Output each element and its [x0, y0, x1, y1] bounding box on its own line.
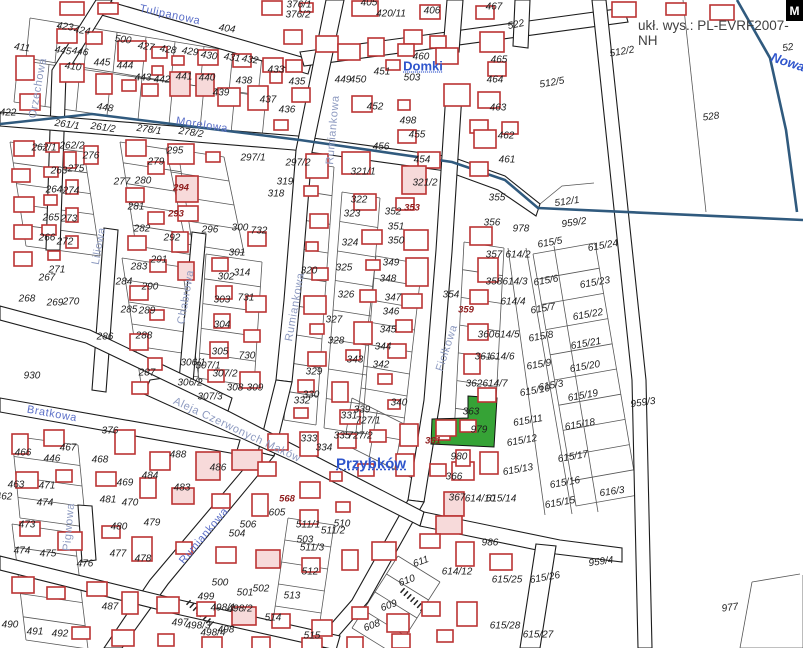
- parcel-label: 614/6: [489, 352, 514, 363]
- parcel-label: 466: [15, 448, 32, 459]
- building: [404, 230, 428, 250]
- building: [304, 296, 326, 314]
- building: [122, 592, 138, 614]
- building: [352, 607, 368, 619]
- parcel-label: 614/12: [442, 567, 473, 578]
- parcel-label: 363: [463, 407, 480, 418]
- parcel-label: 732: [251, 226, 268, 237]
- parcel-label: 452: [367, 102, 384, 113]
- parcel-label: 321/2: [412, 178, 437, 189]
- parcel-label: 451: [374, 67, 391, 78]
- parcel-label: 503: [404, 73, 421, 84]
- parcel-label: 347: [385, 293, 402, 304]
- parcel-label: 266: [39, 233, 56, 244]
- building: [336, 502, 350, 512]
- parcel-label: 435: [289, 77, 306, 88]
- building: [406, 258, 428, 286]
- building: [158, 634, 174, 646]
- parcel-label: 488: [170, 450, 187, 461]
- parcel-label: 346: [383, 307, 400, 318]
- building: [304, 186, 318, 196]
- parcel-label: 340: [391, 398, 408, 409]
- building: [372, 542, 396, 560]
- parcel-label: 481: [100, 495, 117, 506]
- building: [112, 630, 134, 646]
- parcel-label: 327: [326, 315, 343, 326]
- parcel-label: 614/3: [502, 277, 527, 288]
- parcel-label: 511/1: [296, 520, 320, 531]
- map-mode-button[interactable]: M: [786, 0, 803, 21]
- building: [366, 260, 380, 270]
- parcel-label: 288: [136, 331, 153, 342]
- building: [212, 258, 228, 271]
- parcel-label: 308: [227, 383, 244, 394]
- parcel-label: 510: [334, 519, 351, 530]
- parcel-label: 285: [121, 305, 138, 316]
- parcel-label: 272: [57, 237, 74, 248]
- parcel-label: 528: [702, 110, 720, 123]
- parcel-label: 273: [61, 214, 78, 225]
- building: [284, 30, 302, 44]
- parcel-label: 323: [344, 209, 361, 220]
- building: [457, 602, 477, 626]
- parcel-label: 334: [316, 443, 333, 454]
- parcel-label: 271: [49, 265, 66, 276]
- building: [362, 230, 382, 244]
- building: [300, 482, 320, 498]
- parcel-label: 986: [482, 538, 499, 549]
- building: [404, 30, 422, 44]
- building: [14, 252, 32, 266]
- building: [150, 452, 170, 470]
- parcel-label: 281: [128, 202, 145, 213]
- building: [12, 169, 30, 182]
- building: [480, 32, 504, 52]
- parcel-label: 487: [102, 602, 119, 613]
- parcel-label: 486: [210, 463, 227, 474]
- building: [436, 420, 456, 436]
- parcel-label: 262/2: [59, 141, 84, 152]
- parcel-label: 295: [167, 146, 184, 157]
- parcel-label: 309: [247, 383, 264, 394]
- parcel-label: 614/7: [482, 379, 507, 390]
- parcel-label: 484: [142, 471, 159, 482]
- parcel-label: 344: [375, 342, 392, 353]
- parcel-label: 292: [164, 233, 181, 244]
- building: [332, 382, 348, 402]
- building: [330, 472, 342, 481]
- parcel-label: 514: [265, 613, 282, 624]
- parcel-label: 283: [131, 262, 148, 273]
- parcel-label: 731: [238, 293, 255, 304]
- parcel-label: 325: [336, 263, 353, 274]
- parcel-label: 322: [351, 195, 368, 206]
- building: [72, 627, 90, 639]
- parcel-label: 405: [361, 0, 378, 9]
- building: [47, 587, 65, 599]
- building: [126, 140, 146, 156]
- building: [286, 60, 302, 72]
- building: [308, 352, 326, 366]
- parcel-label: 498/4: [200, 628, 225, 639]
- parcel-label: 406: [424, 6, 441, 17]
- parcel-label: 454: [414, 155, 431, 166]
- parcel-label: 297/1: [240, 153, 265, 164]
- parcel-label: 492: [52, 629, 69, 640]
- building: [216, 547, 236, 563]
- parcel-label: 332: [294, 396, 311, 407]
- building: [98, 3, 118, 14]
- building: [342, 550, 358, 570]
- building: [60, 2, 84, 15]
- building: [87, 582, 107, 596]
- building: [262, 1, 282, 15]
- building: [132, 382, 148, 394]
- parcel-label: 443: [135, 73, 152, 84]
- parcel-label: 270: [63, 297, 80, 308]
- parcel-label: 979: [471, 425, 488, 436]
- parcel-label: 470: [122, 498, 139, 509]
- building: [310, 324, 324, 334]
- parcel-label: 463: [490, 103, 507, 114]
- building: [392, 634, 410, 648]
- parcel-label: 441: [176, 72, 193, 83]
- building: [387, 614, 409, 632]
- parcel-label: 431: [223, 51, 241, 64]
- parcel-label: 279: [148, 157, 165, 168]
- parcel-label: 475: [40, 549, 57, 560]
- building: [172, 56, 184, 65]
- building: [292, 88, 310, 102]
- parcel-label: 730: [239, 351, 256, 362]
- parcel-label: 324: [342, 238, 359, 249]
- parcel-label: 265: [43, 213, 60, 224]
- parcel-label: 427: [137, 40, 155, 53]
- building: [398, 100, 410, 110]
- height-system-note: ukł. wys.: PL-EVRF2007-NH: [638, 18, 803, 48]
- parcel-label: 307/3: [197, 392, 222, 403]
- parcel-label: 318: [268, 189, 285, 200]
- parcel-label: 362: [466, 379, 483, 390]
- building: [378, 374, 392, 384]
- parcel-label: 360: [478, 330, 495, 341]
- parcel-label: 437: [260, 95, 277, 106]
- building: [612, 2, 636, 17]
- parcel-label: 276: [83, 151, 100, 162]
- parcel-label: 455: [409, 130, 426, 141]
- parcel-label: 504: [229, 529, 246, 540]
- parcel-label: 300: [232, 223, 249, 234]
- parcel-label: 297/2: [285, 158, 310, 169]
- parcel-label: 376/2: [285, 10, 310, 21]
- parcel-label: 357: [486, 250, 503, 261]
- parcel-label: 461: [499, 155, 516, 166]
- parcel-label: 366: [446, 472, 463, 483]
- building: [316, 36, 338, 52]
- parcel-label: 512: [302, 567, 319, 578]
- parcel-label: 429: [181, 45, 199, 58]
- parcel-label: 462: [498, 131, 515, 142]
- building: [430, 36, 446, 48]
- parcel-label: 269: [47, 298, 64, 309]
- building: [294, 408, 308, 418]
- building: [347, 637, 363, 648]
- parcel-label: 615/25: [492, 575, 523, 586]
- building: [436, 516, 462, 534]
- parcel-label: 329: [306, 367, 323, 378]
- parcel-label: 289: [139, 306, 156, 317]
- parcel-label: 302: [218, 272, 235, 283]
- parcel-label: 478: [135, 554, 152, 565]
- building: [48, 251, 60, 260]
- parcel-label: 291: [151, 255, 168, 266]
- building: [306, 242, 318, 251]
- parcel-label: 262/1: [31, 143, 56, 154]
- parcel-label: 423: [56, 20, 74, 33]
- parcel-label: 263: [51, 166, 68, 177]
- building: [338, 44, 360, 60]
- building: [96, 74, 112, 94]
- parcel-label: 264: [46, 185, 63, 196]
- parcel-label: 307/2: [212, 369, 237, 380]
- parcel-label: 349: [383, 258, 400, 269]
- parcel-label: 268: [19, 294, 36, 305]
- building: [310, 214, 328, 228]
- parcel-label: 326: [338, 290, 355, 301]
- address-label: 353: [404, 203, 420, 214]
- parcel-label: 614/2: [505, 250, 530, 261]
- parcel-label: 614/5: [494, 330, 519, 341]
- parcel-label: 348: [380, 274, 397, 285]
- parcel-label: 436: [279, 105, 296, 116]
- building: [402, 294, 422, 308]
- building: [12, 577, 34, 593]
- parcel-label: 444: [117, 61, 134, 72]
- building: [16, 56, 34, 80]
- parcel-label: 284: [116, 277, 133, 288]
- parcel-label: 319: [277, 177, 294, 188]
- parcel-label: 321/1: [350, 167, 375, 178]
- address-label: 361: [425, 436, 441, 447]
- parcel-label: 430: [200, 49, 218, 62]
- parcel-label: 438: [236, 76, 253, 87]
- address-label: 293: [168, 209, 184, 220]
- parcel-label: 456: [373, 142, 390, 153]
- building: [206, 152, 220, 162]
- building: [396, 320, 412, 332]
- parcel-label: 474: [37, 498, 54, 509]
- parcel-label: 432: [241, 53, 259, 66]
- parcel-label: 339: [354, 405, 371, 416]
- parcel-label: 467: [486, 2, 503, 13]
- place-label: Przybków: [336, 456, 406, 473]
- parcel-label: 446: [71, 45, 89, 58]
- building: [14, 197, 34, 212]
- address-label: 568: [279, 494, 295, 505]
- building: [437, 630, 453, 642]
- building: [478, 388, 496, 402]
- parcel-label: 296: [202, 225, 219, 236]
- building: [142, 84, 158, 96]
- parcel-label: 476: [77, 559, 94, 570]
- parcel-label: 469: [117, 478, 134, 489]
- parcel-label: 446: [44, 454, 61, 465]
- building: [480, 452, 498, 474]
- parcel-label: 980: [451, 452, 468, 463]
- address-label: 294: [173, 183, 189, 194]
- parcel-label: 615/27: [523, 630, 554, 641]
- parcel-label: 287: [139, 368, 156, 379]
- parcel-label: 410: [64, 60, 82, 73]
- building: [490, 554, 512, 570]
- building: [56, 470, 72, 482]
- parcel-label: 463: [8, 480, 25, 491]
- parcel-label: 358: [486, 277, 503, 288]
- parcel-label: 445: [94, 58, 111, 69]
- parcel-label: 351: [388, 222, 405, 233]
- building: [44, 195, 57, 205]
- parcel-label: 303: [214, 295, 231, 306]
- parcel-label: 440: [199, 73, 216, 84]
- parcel-label: 511/3: [300, 543, 324, 554]
- parcel-label: 301: [229, 248, 246, 259]
- parcel-label: 515: [304, 631, 321, 642]
- parcel-label: 499: [198, 592, 215, 603]
- parcel-label: 314: [234, 268, 251, 279]
- parcel-label: 474: [14, 546, 31, 557]
- building: [470, 290, 488, 304]
- parcel-label: 467: [60, 443, 77, 454]
- parcel-label: 305: [212, 347, 229, 358]
- parcel-label: 404: [218, 22, 236, 35]
- parcel-label: 350: [388, 236, 405, 247]
- parcel-label: 355: [489, 193, 506, 204]
- parcel-label: 727/2: [347, 431, 372, 442]
- parcel-label: 445: [54, 44, 72, 57]
- parcel-label: 479: [144, 518, 161, 529]
- parcel-label: 439: [213, 88, 230, 99]
- building: [360, 290, 376, 302]
- parcel-label: 462: [0, 492, 12, 503]
- parcel-label: 471: [39, 481, 56, 492]
- building: [666, 3, 686, 15]
- address-label: 359: [458, 305, 474, 316]
- parcel-label: 614/4: [500, 297, 525, 308]
- parcel-label: 376: [102, 426, 119, 437]
- building: [398, 44, 414, 56]
- parcel-label: 727/1: [355, 416, 380, 427]
- building: [157, 597, 179, 613]
- parcel-label: 605: [269, 508, 286, 519]
- parcel-label: 477: [110, 549, 127, 560]
- parcel-label: 978: [513, 224, 530, 235]
- parcel-label: 342: [373, 360, 390, 371]
- parcel-label: 615/28: [490, 621, 521, 632]
- parcel-label: 450: [350, 75, 367, 86]
- parcel-label: 433: [268, 65, 285, 76]
- parcel-label: 424: [73, 24, 91, 37]
- parcel-label: 501: [237, 588, 254, 599]
- building: [474, 130, 496, 148]
- building: [256, 550, 280, 568]
- building: [252, 494, 268, 516]
- place-label: Domki: [403, 59, 443, 74]
- parcel-label: 290: [142, 282, 159, 293]
- parcel-label: 483: [174, 483, 191, 494]
- parcel-label: 343: [347, 355, 364, 366]
- parcel-label: 420/11: [376, 9, 406, 20]
- parcel-label: 473: [19, 520, 36, 531]
- building: [430, 464, 446, 476]
- building: [444, 84, 470, 106]
- building: [420, 534, 440, 548]
- parcel-label: 282: [134, 224, 151, 235]
- parcel-label: 498/2: [227, 604, 252, 615]
- parcel-label: 502: [253, 584, 270, 595]
- parcel-label: 411: [13, 41, 30, 54]
- parcel-label: 442: [154, 75, 171, 86]
- parcel-label: 500: [212, 578, 229, 589]
- building: [202, 637, 222, 648]
- parcel-label: 328: [328, 336, 345, 347]
- building: [126, 188, 144, 202]
- parcel-label: 448: [96, 101, 114, 114]
- parcel-label: 345: [380, 325, 397, 336]
- building: [274, 120, 288, 130]
- parcel-label: 977: [721, 601, 739, 614]
- parcel-label: 428: [159, 43, 177, 56]
- parcel-label: 356: [484, 218, 501, 229]
- building: [148, 212, 164, 224]
- building: [354, 322, 372, 344]
- parcel-label: 490: [2, 620, 19, 631]
- building: [244, 330, 260, 342]
- building: [400, 424, 418, 446]
- parcel-label: 465: [491, 55, 508, 66]
- parcel-label: 500: [114, 33, 132, 46]
- parcel-label: 498: [400, 116, 417, 127]
- parcel-label: 480: [111, 522, 128, 533]
- building: [252, 637, 270, 648]
- parcel-label: 354: [443, 290, 460, 301]
- building: [470, 227, 492, 245]
- building: [258, 462, 276, 476]
- parcel-label: 352: [385, 207, 402, 218]
- parcel-label: 468: [92, 455, 109, 466]
- parcel-label: 615/14: [486, 494, 517, 505]
- building: [128, 236, 146, 250]
- building: [422, 602, 440, 616]
- parcel-label: 306/2: [177, 378, 202, 389]
- building: [368, 38, 384, 56]
- parcel-label: 422: [0, 108, 16, 119]
- building: [96, 472, 116, 486]
- parcel-label: 513: [284, 591, 301, 602]
- building: [14, 225, 32, 239]
- parcel-label: 491: [27, 627, 44, 638]
- parcel-label: 274: [63, 186, 80, 197]
- cadastral-map: 4104234244044115004274284294304314324454…: [0, 0, 803, 648]
- parcel-label: 464: [487, 75, 504, 86]
- parcel-label: 277: [114, 177, 131, 188]
- parcel-label: 286: [97, 332, 114, 343]
- parcel-label: 930: [24, 371, 41, 382]
- parcel-label: 280: [135, 176, 152, 187]
- parcel-label: 304: [214, 320, 231, 331]
- building: [456, 542, 474, 566]
- building: [470, 162, 488, 176]
- parcel-label: 275: [68, 164, 85, 175]
